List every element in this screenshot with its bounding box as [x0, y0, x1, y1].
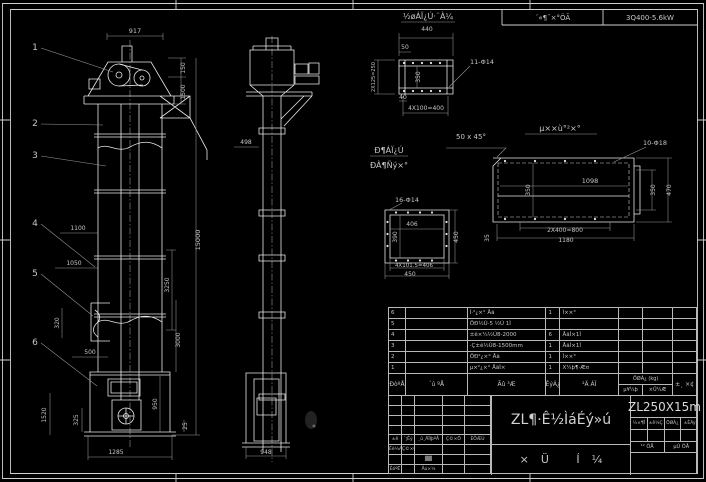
dimension-label: 1520 — [41, 407, 48, 422]
scale-value — [681, 430, 698, 441]
bom-cell: Ì××° — [560, 352, 619, 362]
stage-mark-header-cell: ±ê¼Ç — [648, 418, 665, 429]
header-field-motor-spec: 3Q400-5.6kW — [604, 10, 696, 25]
bom-cell — [406, 363, 468, 373]
bom-cell — [546, 319, 560, 329]
bom-header-unit-weight: µ¥¼þ — [619, 385, 643, 395]
bom-cell — [673, 319, 696, 329]
balloon-leader — [41, 124, 103, 125]
dimension-label: ÐÂ¶Ñý×° — [370, 159, 408, 170]
revision-cell — [443, 465, 465, 473]
balloon-number: 2 — [32, 119, 38, 129]
bom-cell — [560, 319, 619, 329]
bom-cell: 6 — [546, 330, 560, 340]
bottom-empty-cell — [631, 453, 698, 474]
bom-cell: Ì××° — [560, 308, 619, 318]
bom-cell — [673, 308, 696, 318]
dimension-label: 470 — [666, 184, 673, 196]
revision-row: ±ê´¦Êý¸ü¸ÄÎļþºÅÇ©×ÖÈÕÆÚ — [389, 435, 491, 445]
stage-mark-value — [648, 430, 665, 441]
revision-cell — [415, 406, 443, 415]
bom-cell — [643, 341, 673, 351]
revision-cell — [389, 416, 402, 425]
dimension-label: 25 — [182, 422, 189, 430]
bom-cell — [643, 330, 673, 340]
bom-cell — [643, 363, 673, 373]
dimension-label: 150 — [180, 62, 187, 74]
revision-cell — [443, 455, 465, 464]
revision-row — [389, 426, 491, 435]
balloon-leader — [41, 156, 106, 166]
bom-header-no: ÐòºÅ — [389, 374, 406, 395]
bom-cell — [619, 319, 643, 329]
dimension-label: 2X125=250 — [371, 62, 377, 92]
revision-cell — [465, 426, 491, 434]
revision-cell — [443, 445, 465, 454]
bom-cell — [619, 352, 643, 362]
drive-motor-hub — [140, 76, 144, 80]
bom-cell — [643, 308, 673, 318]
bom-header-weight: ÖØÁ¿ (kg) — [619, 374, 672, 385]
dimension-label: 350 — [415, 71, 422, 83]
dimension-label: 10-Φ18 — [643, 139, 667, 147]
bom-cell: 1 — [389, 363, 406, 373]
bom-cell — [406, 330, 468, 340]
bom-row: 3·Ç±ê½Ú8-1500mm1ÅäÌ×1Ì — [389, 341, 696, 352]
bom-cell — [406, 319, 468, 329]
bom-cell — [643, 352, 673, 362]
sheet-count-row: ¹² ÕÅµÚ ÕÅ — [631, 442, 698, 453]
bom-header-name: Ãû ³Æ — [468, 374, 547, 395]
stage-mark-header-cell: ÖØÁ¿ — [665, 418, 682, 429]
revision-cell: Ç©×Ö — [402, 445, 415, 454]
revision-cell — [415, 396, 443, 405]
bom-cell: 1 — [546, 352, 560, 362]
bom-cell — [406, 308, 468, 318]
bom-cell — [619, 308, 643, 318]
detail-inlet-flange — [399, 60, 453, 94]
balloon-number: 1 — [32, 43, 38, 53]
bom-cell: ·Ç±ê½Ú8-1500mm — [468, 341, 547, 351]
bom-header-weight-group: ÖØÁ¿ (kg) µ¥¼þ ×Ü¼Æ — [619, 374, 673, 395]
bom-cell: 1 — [546, 363, 560, 373]
dimension-label: 35 — [484, 234, 491, 242]
revision-cell: Åú×¼ — [415, 465, 443, 473]
balloon-number: 6 — [32, 338, 38, 348]
revision-cell — [402, 455, 415, 464]
front-view-linework — [84, 46, 207, 436]
sheet-count-cell: µÚ ÕÅ — [665, 442, 699, 452]
dimension-label: 320 — [54, 317, 61, 329]
header-field-drive: ´«¶¯×°ÖÃ — [503, 10, 602, 25]
stage-mark-header-row: ½×¶Î±ê¼ÇÖØÁ¿±ÈÀý — [631, 418, 698, 430]
bom-cell: Í·²¿×° Åä — [468, 308, 547, 318]
dimension-label: 406 — [406, 221, 418, 228]
revision-cell — [443, 416, 465, 425]
balloon-leader — [41, 274, 93, 316]
stage-mark-value-row — [631, 430, 698, 442]
revision-grid: ±ê´¦Êý¸ü¸ÄÎļþºÅÇ©×ÖÈÕÆÚÉè¼ÆÇ©×Ö██ÉóºËÅú×… — [389, 396, 491, 475]
base-frame-inner-dashed — [498, 163, 629, 217]
balloon-number: 5 — [32, 269, 38, 279]
bom-cell: X¼þ¶·Æ¤ — [560, 363, 619, 373]
dimension-label: µ××ù°²×° — [539, 124, 580, 133]
bom-table: 6Í·²¿×° Åä1Ì××°5ÖÐ½Ú·5 ½Ú 1Ì4±ê×¼½Ú8-200… — [389, 308, 696, 374]
bom-header-mat: ²Ä ÁÏ — [560, 374, 619, 395]
dimension-label: 3000 — [175, 332, 182, 347]
revision-cell — [389, 426, 402, 434]
revision-row: Éè¼ÆÇ©×Ö — [389, 445, 491, 455]
side-view-linework — [242, 38, 319, 452]
bom-cell: 1 — [546, 341, 560, 351]
bom-cell: ÖÐ²¿×° Åä — [468, 352, 547, 362]
dimension-label: 450 — [404, 271, 416, 278]
bom-cell — [673, 352, 696, 362]
bom-row: 4±ê×¼½Ú8-20006ÅäÌ×1Ì — [389, 330, 696, 341]
sheet-count-cell: ¹² ÕÅ — [631, 442, 665, 452]
head-pulley-hub — [116, 72, 122, 78]
revision-cell — [402, 416, 415, 425]
bom-header-row: ÐòºÅ ´ú ºÅ Ãû ³Æ ÊýÁ¿ ²Ä ÁÏ ÖØÁ¿ (kg) µ¥… — [389, 374, 696, 396]
dimension-label: 3250 — [164, 277, 171, 292]
bom-cell: ÖÐ½Ú·5 ½Ú 1Ì — [468, 319, 547, 329]
bom-cell: ÅäÌ×1Ì — [560, 341, 619, 351]
bom-cell — [406, 352, 468, 362]
dimension-label: 50 x 45° — [456, 133, 486, 141]
drawing-subtitle: ×Ü Í¼ — [492, 445, 630, 474]
bom-row: 2ÖÐ²¿×° Åä1Ì××° — [389, 352, 696, 363]
revision-row: ██ — [389, 455, 491, 465]
bom-cell — [619, 341, 643, 351]
bom-cell — [673, 341, 696, 351]
revision-cell — [389, 455, 402, 464]
dimension-label: 40 — [399, 94, 407, 101]
revision-cell — [443, 406, 465, 415]
bom-cell — [619, 330, 643, 340]
model-block: ZL250X15m ½×¶Î±ê¼ÇÖØÁ¿±ÈÀý ¹² ÕÅµÚ ÕÅ — [630, 396, 698, 475]
bom-header-remark: ±¸ ×¢ — [673, 374, 696, 395]
revision-cell: ´¦Êý — [402, 435, 415, 444]
bom-header-total-weight: ×Ü¼Æ — [643, 385, 672, 395]
bom-row: 1µ×²¿×° ÅäÌ×1X¼þ¶·Æ¤ — [389, 363, 696, 374]
dimension-label: 1180 — [558, 237, 573, 244]
dimension-label: 350 — [525, 184, 532, 196]
bom-cell: 2 — [389, 352, 406, 362]
dimension-label: 450 — [453, 231, 460, 243]
stage-mark-value — [631, 430, 648, 441]
bom-cell: 4 — [389, 330, 406, 340]
dimension-label: 50 — [401, 44, 409, 51]
dimension-label: 917 — [129, 27, 141, 35]
revision-cell — [465, 465, 491, 473]
revision-cell — [415, 426, 443, 434]
dimension-label: 950 — [152, 398, 159, 410]
model-number: ZL250X15m — [631, 396, 698, 418]
bom-header-qty: ÊýÁ¿ — [546, 374, 560, 395]
revision-cell — [402, 406, 415, 415]
dimension-label: 390 — [392, 231, 399, 243]
bom-cell: ±ê×¼½Ú8-2000 — [468, 330, 547, 340]
dimension-label: 948 — [260, 449, 272, 456]
revision-cell — [389, 406, 402, 415]
bom-cell: 6 — [389, 308, 406, 318]
bom-header-code: ´ú ºÅ — [406, 374, 468, 395]
dimension-label: 16-Φ14 — [395, 196, 419, 204]
dimension-label: 350 — [650, 184, 657, 196]
revision-cell — [465, 445, 491, 454]
revision-cell: ¸ü¸ÄÎļþºÅ — [415, 435, 443, 444]
revision-cell: Éè¼Æ — [389, 445, 402, 454]
bom-cell — [673, 363, 696, 373]
bom-cell: µ×²¿×° ÅäÌ× — [468, 363, 547, 373]
title-and-bom-block: 6Í·²¿×° Åä1Ì××°5ÖÐ½Ú·5 ½Ú 1Ì4±ê×¼½Ú8-200… — [388, 307, 697, 474]
dimension-label: 1100 — [70, 225, 85, 232]
revision-cell — [465, 406, 491, 415]
title-cell: ZL¶·Ê½ÌáÉý»ú ×Ü Í¼ — [491, 396, 630, 475]
dimension-label: 498 — [240, 139, 252, 146]
revision-cell — [415, 445, 443, 454]
bom-cell: 3 — [389, 341, 406, 351]
drive-motor-pulley — [134, 70, 150, 86]
bom-cell: ÅäÌ×1Ì — [560, 330, 619, 340]
dimension-label: 1098 — [582, 177, 599, 185]
bom-cell — [406, 341, 468, 351]
revision-cell: Ç©×Ö — [443, 435, 465, 444]
balloon-number: 4 — [32, 219, 38, 229]
stage-mark-header-cell: ±ÈÀý — [681, 418, 698, 429]
dimension-label: ½øÁÏ¿Ú·¨À¼ — [403, 10, 454, 21]
dimension-label: 1285 — [108, 449, 123, 456]
revision-row — [389, 416, 491, 426]
bom-cell — [673, 330, 696, 340]
dimension-label: 1050 — [66, 260, 81, 267]
revision-cell — [402, 465, 415, 473]
dimension-label: 4X100=400 — [408, 105, 444, 112]
dimension-label: 440 — [421, 26, 433, 33]
bom-row: 5ÖÐ½Ú·5 ½Ú 1Ì — [389, 319, 696, 330]
head-pulley — [108, 64, 130, 86]
revision-cell — [465, 416, 491, 425]
weight-value — [665, 430, 682, 441]
dimension-label: 325 — [73, 414, 80, 426]
drawing-title: ZL¶·Ê½ÌáÉý»ú — [492, 396, 630, 445]
revision-row — [389, 396, 491, 406]
revision-cell: ██ — [415, 455, 443, 464]
bom-cell — [619, 363, 643, 373]
revision-cell: ÈÕÆÚ — [465, 435, 491, 444]
revision-cell: ±ê — [389, 435, 402, 444]
dimension-label: 500 — [84, 349, 96, 356]
revision-row — [389, 406, 491, 416]
bom-cell — [643, 319, 673, 329]
smudge-highlight — [313, 425, 316, 428]
bom-row: 6Í·²¿×° Åä1Ì××° — [389, 308, 696, 319]
detail-base-frame — [493, 158, 640, 222]
balloon-number: 3 — [32, 151, 38, 161]
dimension-label: Ð¶ÁÏ¿Ú — [374, 144, 403, 155]
dimension-label: 4X101.5=406 — [395, 263, 434, 269]
dimension-label: 11-Φ14 — [470, 58, 494, 66]
revision-cell — [465, 396, 491, 405]
dimension-label: 1500 — [180, 84, 187, 99]
stage-mark-header-cell: ½×¶Î — [631, 418, 648, 429]
revision-cell — [465, 455, 491, 464]
revision-cell — [389, 396, 402, 405]
dimension-label: 15000 — [194, 230, 202, 251]
revision-cell — [402, 426, 415, 434]
revision-cell — [443, 426, 465, 434]
revision-cell — [415, 416, 443, 425]
balloon-leader — [41, 48, 113, 72]
revision-cell — [402, 396, 415, 405]
dimension-label: 2X400=800 — [547, 227, 583, 234]
cad-drawing-sheet: 9171501500150003250300095025110010503205… — [0, 0, 706, 482]
bom-cell: 5 — [389, 319, 406, 329]
bom-cell: 1 — [546, 308, 560, 318]
revision-cell: ÉóºË — [389, 465, 402, 473]
revision-row: ÉóºËÅú×¼ — [389, 465, 491, 474]
revision-cell — [443, 396, 465, 405]
